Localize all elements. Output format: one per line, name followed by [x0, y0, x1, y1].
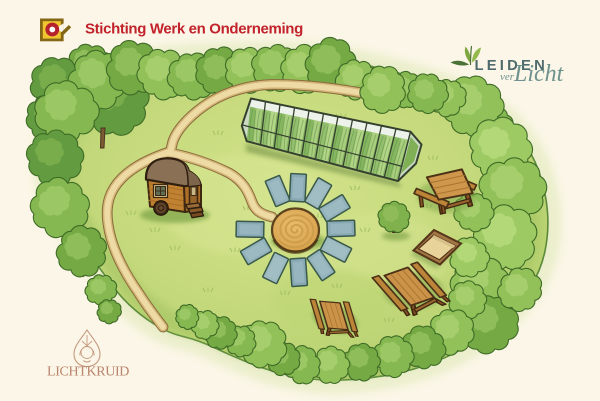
- svg-text:LICHTKRUID: LICHTKRUID: [47, 365, 129, 380]
- svg-text:ver: ver: [500, 71, 515, 83]
- svg-text:Stichting Werk en Onderneming: Stichting Werk en Onderneming: [85, 21, 303, 38]
- svg-text:Licht: Licht: [513, 61, 565, 87]
